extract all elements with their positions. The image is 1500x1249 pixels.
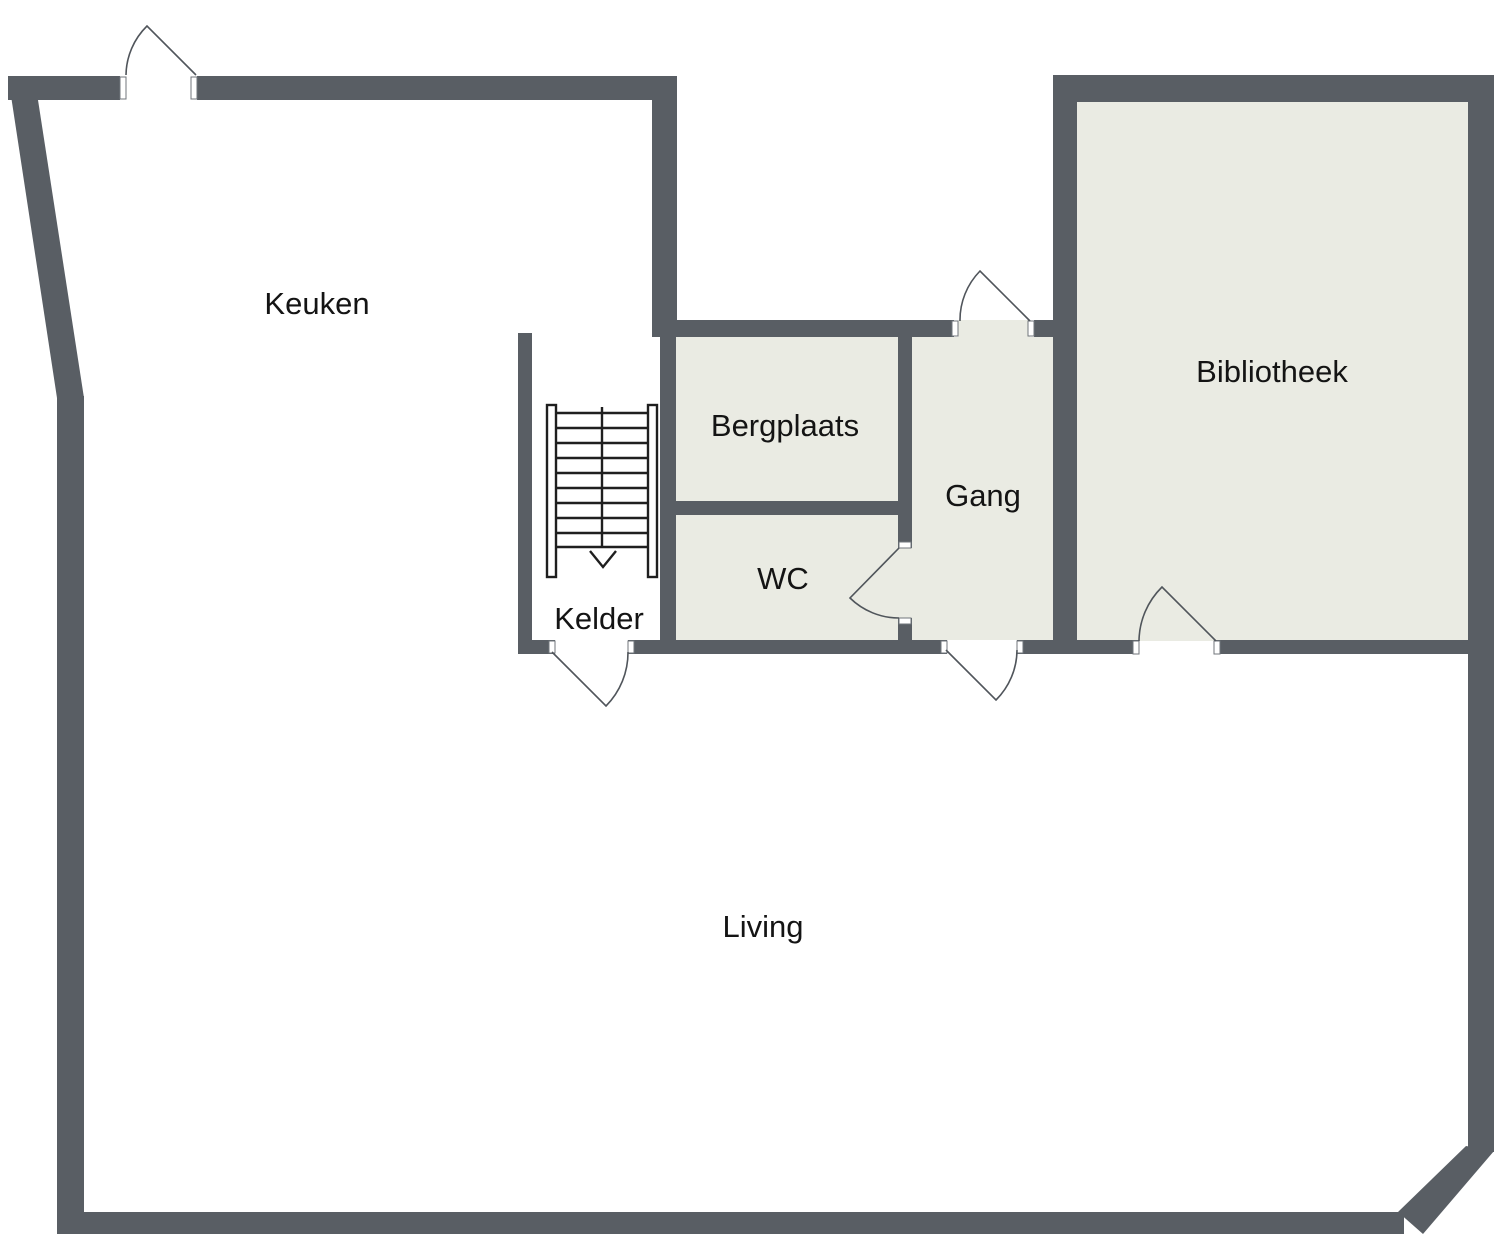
kelder-door-arc (552, 652, 628, 706)
stairs-rail-right (648, 405, 657, 577)
wall-keuken-right (652, 76, 677, 337)
gang-bottom-door-arc (946, 650, 1017, 700)
kelder-staircase (547, 405, 657, 577)
wc-door-jamb-top (899, 542, 911, 548)
living-label: Living (723, 909, 804, 944)
floorplan-svg: Keuken Bergplaats Gang Bibliotheek WC Ke… (0, 0, 1500, 1244)
wall-left-slanted (8, 76, 84, 398)
wall-top-keuken-right (197, 76, 677, 100)
gang-top-door-jamb-right (1028, 321, 1034, 336)
bibliotheek-door-jamb-right (1214, 641, 1220, 654)
wc-label: WC (757, 561, 809, 596)
floorplan-page: Keuken Bergplaats Gang Bibliotheek WC Ke… (0, 0, 1500, 1244)
keuken-door-jamb-right (191, 77, 197, 99)
kelder-label: Kelder (554, 601, 644, 636)
wc-door-jamb-bottom (899, 618, 911, 624)
bergplaats-label: Bergplaats (711, 408, 859, 443)
gang-top-door-arc (960, 271, 1030, 321)
wall-bottom-wc-seg (628, 640, 947, 654)
wall-bottom (57, 1212, 1404, 1234)
stairs-rail-left (547, 405, 556, 577)
wall-bottom-bibliotheek-seg (1214, 640, 1468, 654)
gang-label: Gang (945, 478, 1021, 513)
bibliotheek-door-jamb-left (1133, 641, 1139, 654)
wall-gang-top-right-seg (1034, 320, 1053, 337)
keuken-label: Keuken (264, 286, 369, 321)
wall-top-bibliotheek (1053, 75, 1494, 102)
kelder-door-jamb-right (628, 641, 634, 653)
wall-right (1468, 75, 1494, 1152)
wall-wc-gang-upper (898, 337, 912, 548)
gang-bottom-door-jamb-right (1017, 641, 1023, 653)
wall-corner-diagonal (1398, 1146, 1494, 1234)
wall-kelder-left (518, 333, 532, 654)
bibliotheek-label: Bibliotheek (1196, 354, 1348, 389)
kelder-door-jamb-left (549, 641, 555, 653)
wall-bibliotheek-left (1053, 75, 1077, 654)
wall-bergplaats-wc (674, 501, 898, 515)
gang-top-door-opening-floor (958, 320, 1030, 337)
wall-gang-top-left-seg (652, 320, 954, 337)
wall-left-vertical (57, 396, 84, 1234)
keuken-door-jamb-left (120, 77, 126, 99)
wall-bottom-gang-seg (1017, 640, 1139, 654)
wall-stairs-bergplaats (660, 337, 676, 654)
gang-top-door-jamb-left (952, 321, 958, 336)
keuken-door-arc (126, 26, 196, 75)
wc-door-opening-floor (898, 546, 912, 620)
stairs-down-arrow-icon (590, 551, 616, 567)
